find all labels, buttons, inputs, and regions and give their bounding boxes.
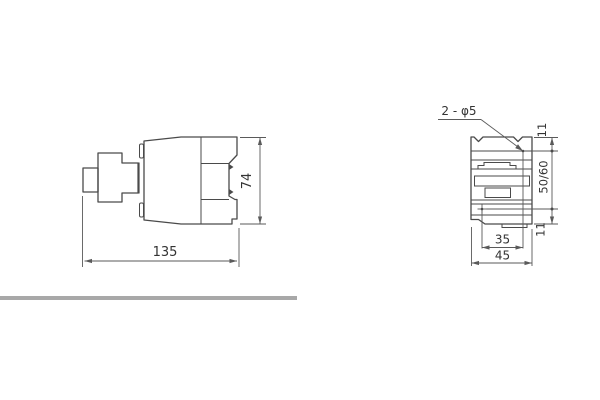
side-view-clip-bottom [140, 203, 144, 217]
drawing-canvas: 135 74 [0, 0, 600, 400]
arrow-down-icon [550, 217, 554, 225]
hole-bottom-mark-icon [481, 208, 484, 211]
din-rail-hook-bottom [229, 189, 234, 195]
arrow-left-icon [85, 259, 93, 263]
side-view [83, 137, 237, 224]
arrow-down-icon [258, 217, 262, 225]
width-dimension-label: 135 [153, 245, 178, 260]
arrow-right-icon [516, 245, 524, 249]
front-view-labels: 2 - φ5 11 50/60 11 35 45 [441, 104, 550, 263]
front-view-label-plate [475, 176, 530, 186]
technical-drawing: 135 74 [0, 0, 600, 400]
divider [0, 296, 297, 300]
side-view-coil-button [83, 168, 98, 192]
side-view-front-block [98, 153, 138, 202]
front-view-step-tab [478, 163, 516, 170]
vertical-spacing-label: 50/60 [537, 160, 551, 193]
top-offset-label: 11 [535, 123, 549, 138]
tick-mark-icon [551, 208, 554, 211]
din-rail-hook-top [229, 164, 234, 170]
side-view-clip-top [140, 144, 144, 158]
side-view-labels: 135 74 [153, 173, 255, 260]
height-dimension-label: 74 [240, 173, 255, 190]
tick-mark-icon [551, 150, 554, 153]
arrow-up-icon [550, 138, 554, 146]
front-view-small-plate [485, 188, 511, 198]
arrow-up-icon [258, 138, 262, 146]
hole-spacing-label: 35 [495, 233, 510, 247]
holes-note-label: 2 - φ5 [441, 104, 476, 118]
bottom-offset-label: 11 [534, 222, 548, 237]
arrow-left-icon [482, 245, 490, 249]
arrow-right-icon [525, 261, 533, 265]
front-width-label: 45 [495, 249, 510, 263]
side-view-body-outline [144, 137, 237, 224]
arrow-right-icon [230, 259, 238, 263]
holes-leader-line [481, 120, 520, 149]
arrow-left-icon [472, 261, 480, 265]
